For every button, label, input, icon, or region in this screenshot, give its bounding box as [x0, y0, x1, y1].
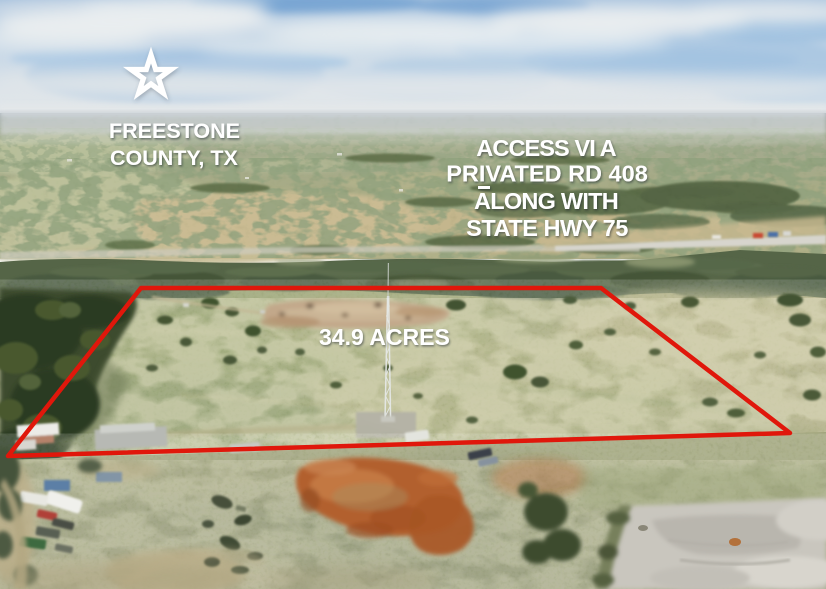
- svg-text:34.9 ACRES: 34.9 ACRES: [319, 324, 450, 350]
- svg-text:FREESTONE: FREESTONE: [109, 119, 240, 143]
- svg-text:COUNTY, TX: COUNTY, TX: [110, 146, 238, 170]
- svg-text:ACCESS VI A: ACCESS VI A: [476, 135, 616, 161]
- svg-text:STATE HWY 75: STATE HWY 75: [466, 215, 628, 241]
- svg-text:ALONG WITH: ALONG WITH: [474, 188, 618, 214]
- svg-text:PRIVATED RD 408: PRIVATED RD 408: [446, 161, 648, 187]
